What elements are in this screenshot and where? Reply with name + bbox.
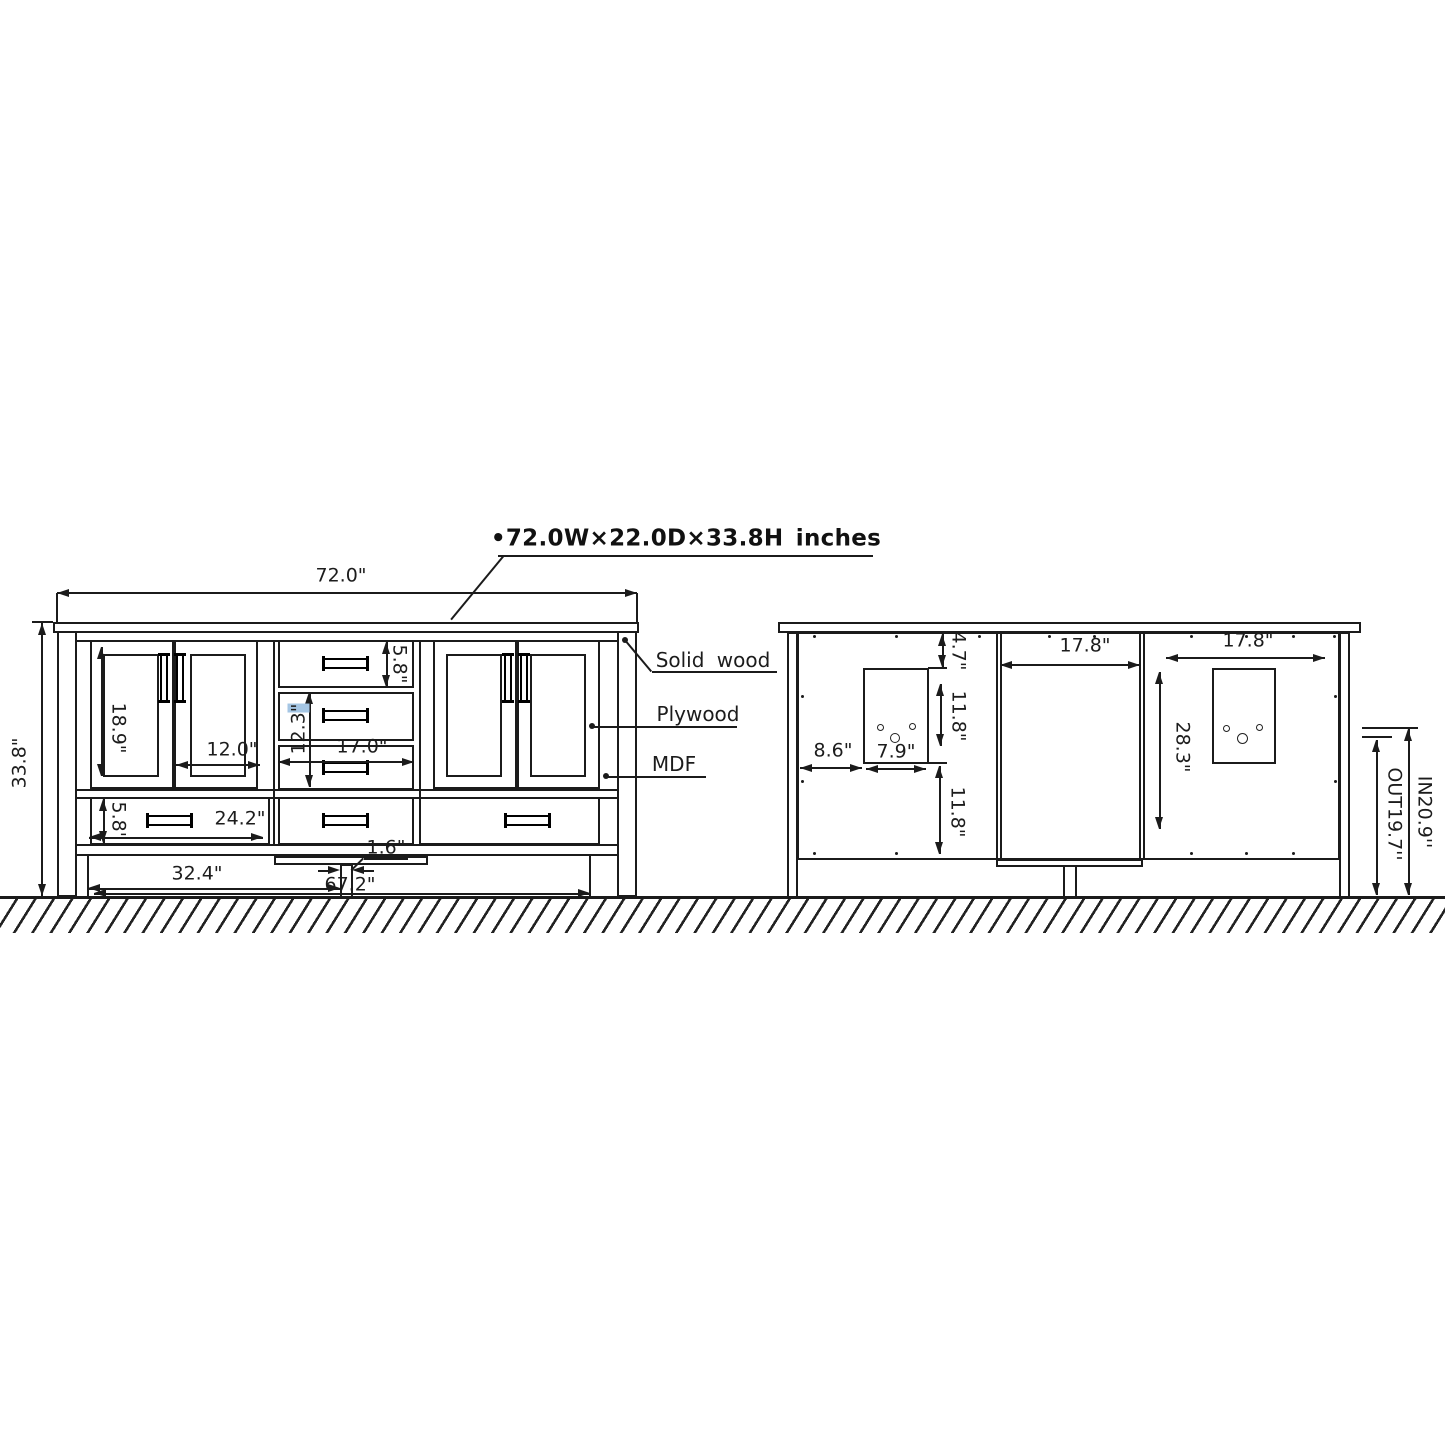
dim-line-middle-panel — [1000, 664, 1140, 666]
dim-inlet-height: IN20.9'' — [1415, 776, 1434, 849]
faucet-hole — [1223, 725, 1230, 732]
tick-dot — [1190, 635, 1193, 638]
tick-dot — [895, 852, 898, 855]
door-right-2-panel — [530, 654, 586, 777]
drawer-handle — [322, 710, 369, 721]
left-leg-front — [57, 631, 77, 897]
dim-line-right-panel — [1166, 657, 1325, 659]
arrowhead — [402, 758, 414, 766]
faucet-hole — [909, 723, 916, 730]
callout-underline — [606, 776, 706, 778]
tick-dot — [1334, 695, 1337, 698]
tick-dot — [1190, 852, 1193, 855]
plumbing-cutout-right — [1212, 668, 1276, 764]
dim-line-bottom-drawer-width — [89, 837, 263, 839]
tick-dot — [1292, 635, 1295, 638]
arrowhead — [251, 833, 263, 841]
door-handle — [520, 653, 528, 703]
arrowhead — [1313, 654, 1325, 662]
arrowhead — [305, 775, 313, 787]
arrowhead — [278, 758, 290, 766]
size-title: •72.0W×22.0D×33.8H inches — [491, 528, 881, 551]
tick-dot — [813, 852, 816, 855]
arrowhead — [99, 799, 107, 811]
dim-middle-panel-width: 17.8" — [1059, 637, 1110, 656]
arrowhead — [89, 833, 101, 841]
arrowhead — [1404, 729, 1412, 741]
arrowhead — [57, 589, 69, 597]
arrowhead — [1372, 883, 1380, 895]
drawer-handle — [146, 815, 193, 826]
door-handle — [160, 653, 168, 703]
title-leader-line — [450, 556, 504, 621]
vanity-dimension-drawing: •72.0W×22.0D×33.8H inches — [0, 0, 1445, 1445]
tick-dot — [1245, 635, 1248, 638]
panel-divider-line — [1143, 633, 1145, 859]
panel-divider-line — [996, 633, 998, 859]
dim-shaft — [364, 870, 374, 872]
material-label-plywood: Plywood — [657, 704, 740, 724]
dim-overall-height: 33.8" — [11, 737, 30, 788]
arrowhead — [914, 765, 926, 773]
dim-cutout-top-offset: 11.8" — [949, 690, 968, 741]
door-right-1-panel — [446, 654, 502, 777]
dim-overall-width: 72.0" — [315, 567, 366, 586]
dim-outlet-height: OUT19.7'' — [1385, 767, 1404, 860]
dim-panel-height: 28.3" — [1173, 721, 1192, 772]
tick-dot — [1292, 852, 1295, 855]
drain-hole — [1237, 733, 1248, 744]
arrowhead — [1000, 661, 1012, 669]
arrowhead — [38, 884, 46, 896]
arrowhead — [935, 842, 943, 854]
arrowhead — [248, 761, 260, 769]
arrowhead — [938, 634, 946, 646]
arrowhead — [1128, 661, 1140, 669]
dim-top-drawer-height: 5.8" — [390, 645, 409, 684]
dim-cutout-bottom-offset: 11.8" — [948, 786, 967, 837]
dim-unit-highlighted: " — [288, 703, 310, 712]
tick-dot — [978, 635, 981, 638]
dim-line-inlet — [1408, 729, 1410, 895]
drawer-handle — [322, 658, 369, 669]
dim-value: 12.3 — [288, 712, 310, 754]
arrowhead — [1166, 654, 1178, 662]
dim-line-outlet — [1376, 740, 1378, 895]
extension-line — [56, 593, 58, 622]
title-underline — [498, 555, 873, 557]
material-label-solid-wood: Solid wood — [656, 650, 771, 670]
tick-dot — [1245, 852, 1248, 855]
material-label-mdf: MDF — [652, 754, 696, 774]
tick-dot — [1334, 780, 1337, 783]
arrowhead — [97, 647, 105, 659]
faucet-hole — [877, 724, 884, 731]
arrowhead — [305, 692, 313, 704]
drawer-handle — [322, 762, 369, 773]
arrowhead — [938, 655, 946, 667]
tick-dot — [801, 695, 804, 698]
floor-hatch — [0, 899, 1445, 933]
drawer-handle — [504, 815, 551, 826]
dim-door-height: 18.9" — [109, 702, 128, 753]
tick-dot — [895, 635, 898, 638]
dim-line-overall-height — [41, 623, 43, 896]
right-leg-front — [617, 631, 637, 897]
extension-line — [636, 593, 638, 622]
arrowhead — [1155, 817, 1163, 829]
tick-dot — [813, 635, 816, 638]
dim-bottom-drawer-width: 24.2" — [214, 810, 265, 829]
dim-door-width: 12.0" — [206, 741, 257, 760]
title-text: 72.0W×22.0D×33.8H inches — [506, 526, 881, 552]
dim-center-leg-width: 1.6" — [367, 839, 406, 858]
dim-top-offset: 4.7" — [949, 632, 968, 671]
arrowhead — [935, 766, 943, 778]
arrowhead — [800, 764, 812, 772]
callout-underline — [592, 726, 737, 728]
arrowhead — [97, 764, 105, 776]
dim-right-panel-width: 17.8" — [1222, 632, 1273, 651]
dim-shaft — [318, 870, 328, 872]
dim-line-drawer-width — [278, 761, 414, 763]
faucet-hole — [1256, 724, 1263, 731]
dim-mid-drawers-height: 12.3" — [290, 703, 309, 754]
dim-cutout-left-offset: 8.6" — [814, 742, 853, 761]
dim-bottom-drawer-height: 5.8" — [109, 802, 128, 841]
arrowhead — [38, 623, 46, 635]
dim-cutout-width: 7.9" — [877, 743, 916, 762]
tick-dot — [1048, 635, 1051, 638]
dim-line-overall-width — [57, 592, 637, 594]
reference-line — [1362, 736, 1392, 738]
dim-line-left-section — [88, 888, 340, 890]
dim-drawer-width: 17.0" — [336, 738, 387, 757]
arrowhead — [1155, 672, 1163, 684]
arrowhead — [936, 684, 944, 696]
arrowhead — [850, 764, 862, 772]
dim-line-door-height — [101, 647, 103, 776]
center-leg-back — [1063, 865, 1077, 898]
door-handle — [504, 653, 512, 703]
arrowhead — [1372, 740, 1380, 752]
leader-underline — [364, 858, 408, 860]
arrowhead — [176, 761, 188, 769]
arrowhead — [936, 734, 944, 746]
dim-base-width: 67.2" — [324, 876, 375, 895]
stile-line-left — [273, 640, 275, 846]
title-bullet: • — [491, 526, 506, 552]
extension-line — [928, 667, 947, 669]
tick-dot — [1093, 635, 1096, 638]
dim-line-panel-height — [1159, 672, 1161, 829]
right-leg-back — [1339, 632, 1350, 898]
tick-dot — [801, 780, 804, 783]
arrowhead — [866, 765, 878, 773]
tick-dot — [1333, 635, 1336, 638]
arrowhead — [1404, 883, 1412, 895]
dim-left-section-width: 32.4" — [171, 865, 222, 884]
arrowhead — [625, 589, 637, 597]
drawer-handle — [322, 815, 369, 826]
door-handle — [176, 653, 184, 703]
dim-line-cutout-bottom — [939, 766, 941, 854]
